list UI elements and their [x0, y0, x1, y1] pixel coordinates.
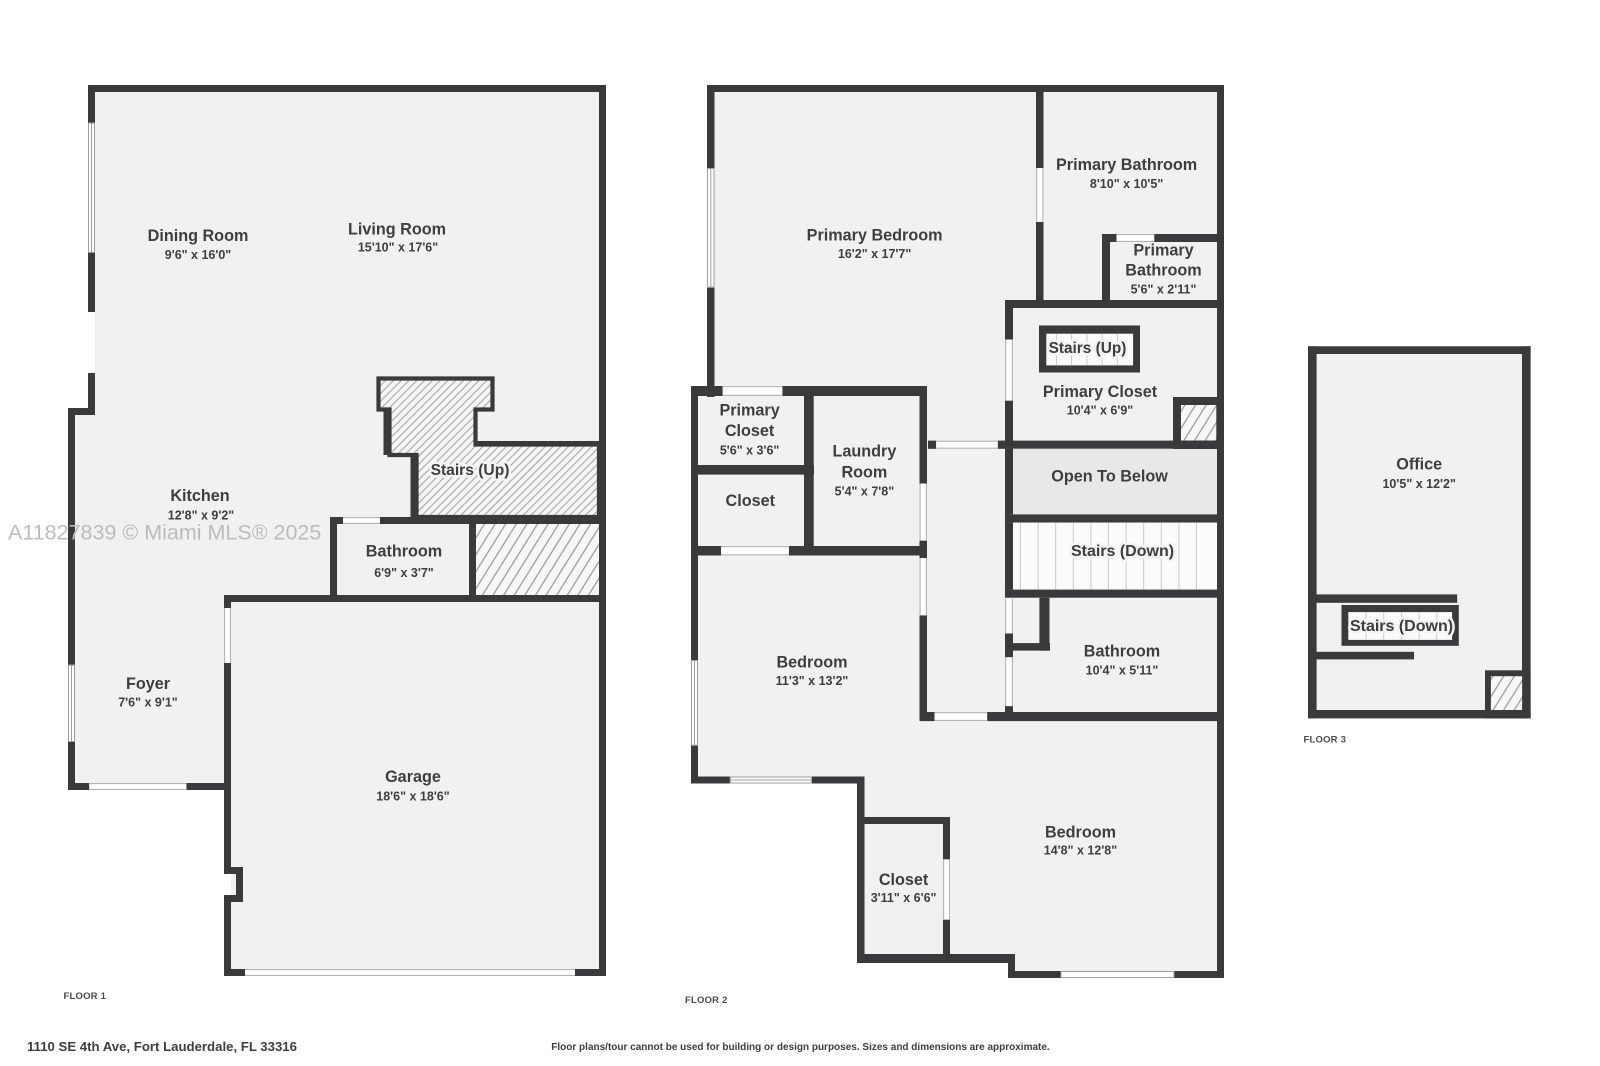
svg-text:10'4" x 6'9": 10'4" x 6'9": [1067, 404, 1134, 418]
svg-text:Dining Room: Dining Room: [148, 227, 249, 245]
svg-text:Room: Room: [841, 464, 887, 482]
svg-text:3'11" x 6'6": 3'11" x 6'6": [871, 891, 937, 905]
svg-text:Bedroom: Bedroom: [776, 654, 847, 672]
svg-text:Living Room: Living Room: [348, 221, 446, 239]
svg-text:Laundry: Laundry: [832, 443, 896, 461]
svg-text:6'9" x 3'7": 6'9" x 3'7": [374, 566, 434, 580]
svg-text:FLOOR 1: FLOOR 1: [64, 991, 107, 1002]
svg-text:Closet: Closet: [726, 492, 776, 510]
svg-text:Primary Bedroom: Primary Bedroom: [807, 227, 943, 245]
svg-text:Office: Office: [1396, 456, 1442, 474]
svg-text:5'6" x 2'11": 5'6" x 2'11": [1131, 283, 1197, 297]
svg-text:Stairs (Up): Stairs (Up): [1049, 340, 1127, 357]
svg-text:Closet: Closet: [879, 871, 929, 889]
svg-text:Kitchen: Kitchen: [170, 487, 229, 505]
svg-text:Garage: Garage: [385, 768, 441, 786]
svg-text:1110 SE 4th Ave, Fort Lauderda: 1110 SE 4th Ave, Fort Lauderdale, FL 333…: [27, 1039, 297, 1054]
svg-text:Bedroom: Bedroom: [1045, 824, 1116, 842]
svg-text:Stairs (Down): Stairs (Down): [1350, 618, 1453, 635]
svg-text:15'10" x 17'6": 15'10" x 17'6": [358, 241, 438, 255]
svg-text:5'6" x 3'6": 5'6" x 3'6": [720, 444, 780, 458]
svg-text:Bathroom: Bathroom: [1125, 262, 1201, 280]
svg-text:Closet: Closet: [725, 422, 775, 440]
svg-text:Primary: Primary: [1133, 242, 1193, 260]
svg-text:Foyer: Foyer: [126, 675, 171, 693]
svg-text:FLOOR 3: FLOOR 3: [1304, 735, 1347, 746]
svg-text:8'10" x 10'5": 8'10" x 10'5": [1090, 177, 1163, 191]
svg-text:Bathroom: Bathroom: [1084, 643, 1160, 661]
svg-text:10'5" x 12'2": 10'5" x 12'2": [1382, 477, 1455, 491]
svg-text:A11827839 © Miami MLS® 2025: A11827839 © Miami MLS® 2025: [8, 521, 321, 545]
svg-text:Primary: Primary: [719, 402, 779, 420]
svg-text:Bathroom: Bathroom: [366, 543, 442, 561]
svg-text:5'4" x 7'8": 5'4" x 7'8": [835, 485, 895, 499]
svg-text:Stairs (Up): Stairs (Up): [431, 462, 510, 479]
svg-text:Floor plans/tour cannot be use: Floor plans/tour cannot be used for buil…: [551, 1042, 1050, 1053]
svg-text:14'8" x 12'8": 14'8" x 12'8": [1044, 844, 1117, 858]
svg-text:Open To Below: Open To Below: [1051, 468, 1168, 486]
svg-text:10'4" x 5'11": 10'4" x 5'11": [1086, 664, 1159, 678]
svg-text:9'6" x 16'0": 9'6" x 16'0": [165, 248, 232, 262]
svg-text:FLOOR 2: FLOOR 2: [685, 995, 728, 1006]
svg-text:18'6" x 18'6": 18'6" x 18'6": [376, 790, 449, 804]
svg-text:7'6" x 9'1": 7'6" x 9'1": [118, 696, 178, 710]
svg-text:11'3" x 13'2": 11'3" x 13'2": [776, 674, 849, 688]
svg-text:16'2" x 17'7": 16'2" x 17'7": [838, 247, 911, 261]
svg-text:Primary Bathroom: Primary Bathroom: [1056, 156, 1197, 174]
svg-text:Primary Closet: Primary Closet: [1043, 383, 1158, 401]
svg-text:Stairs (Down): Stairs (Down): [1071, 543, 1174, 560]
